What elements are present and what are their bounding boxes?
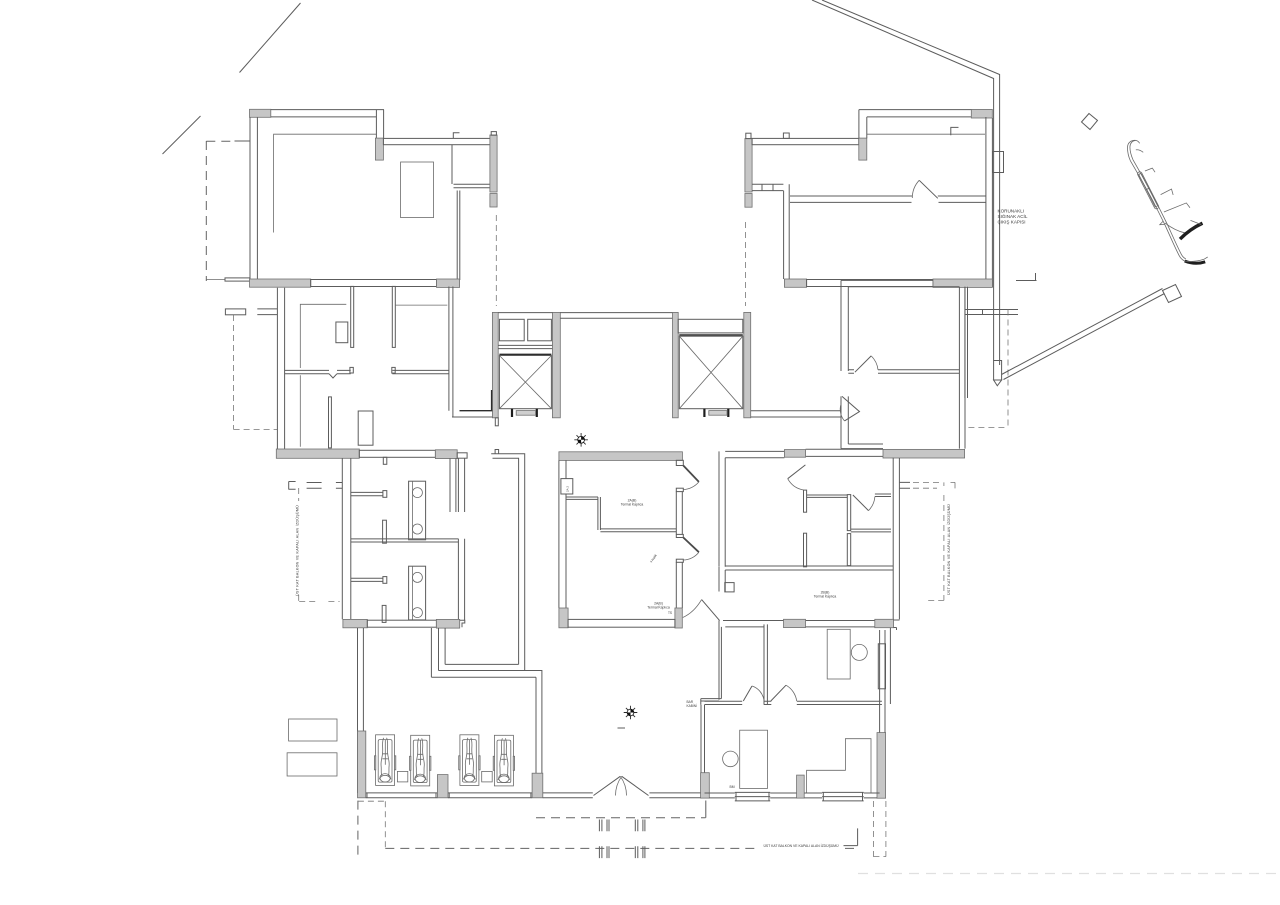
- svg-text:Termal Kaplıca: Termal Kaplıca: [621, 503, 644, 507]
- svg-text:ÜST KAT BALKON VE KAPALI ALAN: ÜST KAT BALKON VE KAPALI ALAN İZDÜŞÜMÜ: [763, 843, 839, 848]
- svg-text:SIĞINAK ACİL: SIĞINAK ACİL: [998, 213, 1028, 219]
- svg-text:Termal Kaplıca: Termal Kaplıca: [814, 595, 837, 599]
- svg-text:ÜST KAT BALKON VE KAPALI ALAN: ÜST KAT BALKON VE KAPALI ALAN İZDÜŞÜMÜ: [294, 505, 299, 596]
- svg-text:2A 2: 2A 2: [566, 486, 570, 492]
- svg-text:Termal Kaplıca: Termal Kaplıca: [647, 606, 670, 610]
- svg-text:KORUNAKLI: KORUNAKLI: [998, 209, 1025, 214]
- svg-text:KABİNİ: KABİNİ: [687, 703, 698, 708]
- svg-text:ÇIKIŞ KAPISI: ÇIKIŞ KAPISI: [998, 220, 1026, 225]
- svg-text:ÜST KAT BALKON VE KAPALI ALAN: ÜST KAT BALKON VE KAPALI ALAN İZDÜŞÜMÜ: [946, 504, 951, 595]
- svg-text:BM: BM: [730, 785, 735, 789]
- svg-text:TS: TS: [668, 611, 672, 615]
